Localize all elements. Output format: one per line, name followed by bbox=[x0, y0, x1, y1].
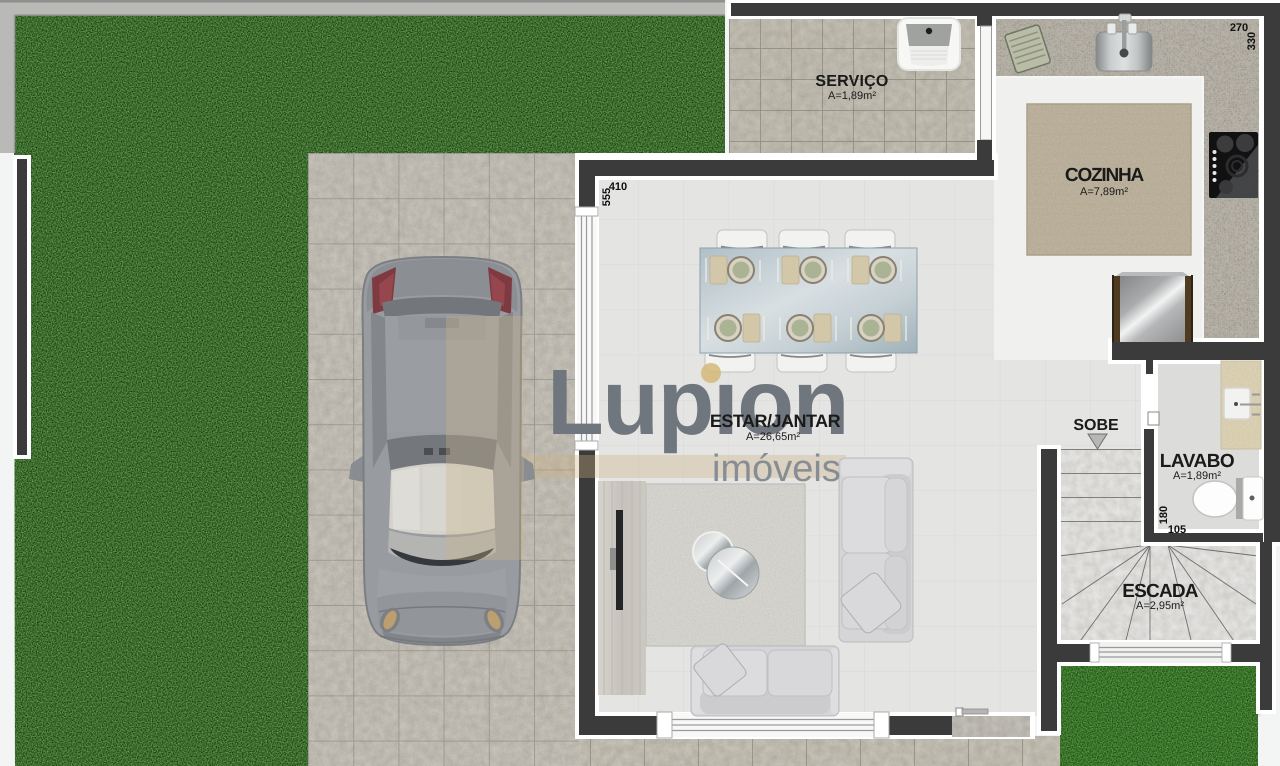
svg-text:A=7,89m²: A=7,89m² bbox=[1080, 186, 1128, 198]
svg-text:A=1,89m²: A=1,89m² bbox=[828, 90, 876, 102]
svg-text:A=26,65m²: A=26,65m² bbox=[746, 431, 800, 443]
svg-text:A=2,95m²: A=2,95m² bbox=[1136, 600, 1184, 612]
svg-text:A=1,89m²: A=1,89m² bbox=[1173, 470, 1221, 482]
svg-text:Lupıon: Lupıon bbox=[547, 350, 848, 454]
svg-text:180: 180 bbox=[1158, 506, 1170, 524]
svg-text:SERVIÇO: SERVIÇO bbox=[815, 73, 888, 90]
svg-text:COZINHA: COZINHA bbox=[1065, 165, 1145, 186]
svg-text:imóveis: imóveis bbox=[712, 448, 841, 490]
svg-text:330: 330 bbox=[1246, 32, 1258, 50]
svg-text:555: 555 bbox=[601, 188, 613, 206]
svg-text:105: 105 bbox=[1168, 524, 1186, 536]
svg-text:SOBE: SOBE bbox=[1073, 417, 1119, 434]
svg-text:ESTAR/JANTAR: ESTAR/JANTAR bbox=[710, 411, 841, 431]
svg-text:LAVABO: LAVABO bbox=[1160, 451, 1234, 472]
svg-text:ESCADA: ESCADA bbox=[1122, 581, 1199, 602]
